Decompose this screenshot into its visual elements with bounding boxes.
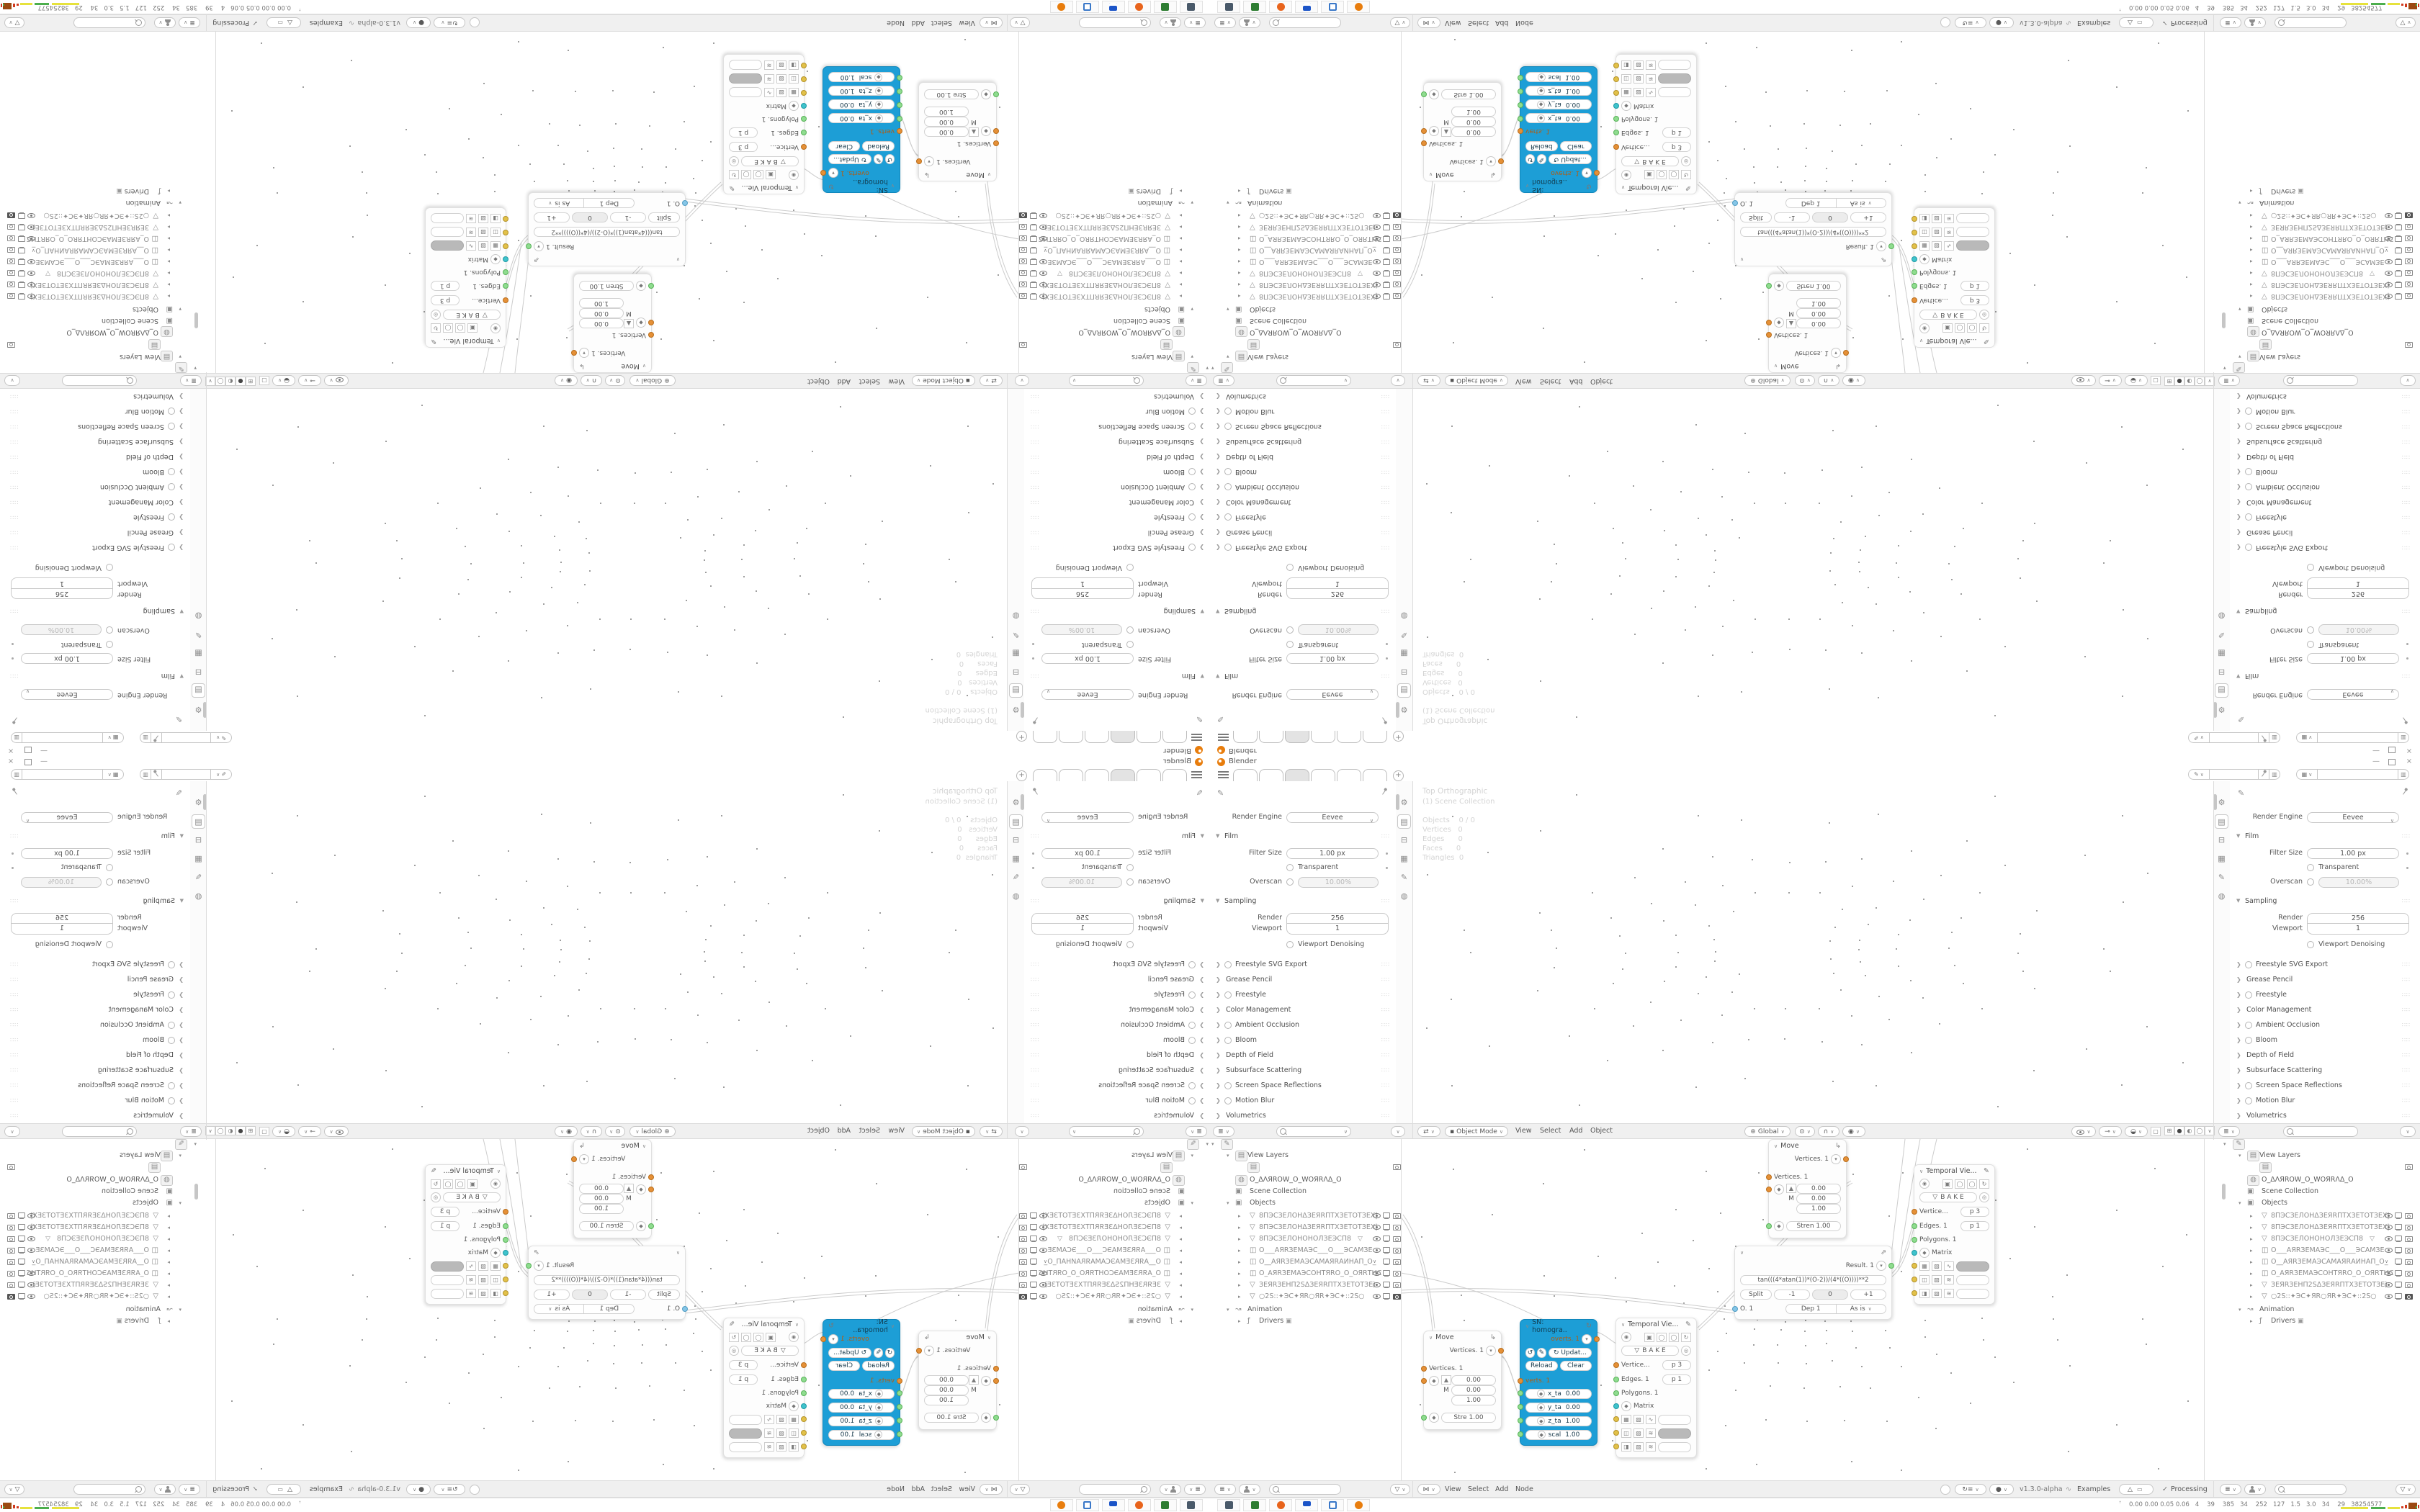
- checkbox[interactable]: [1126, 626, 1134, 634]
- circle-toggle[interactable]: ◯: [753, 1333, 763, 1342]
- offset-button-0[interactable]: 0: [572, 1290, 608, 1300]
- outliner-row[interactable]: ▸◫О_АЯRЗЕМАЭСОНТЯRО_О_ОЯRТНС: [0, 232, 198, 243]
- outliner-row[interactable]: ▸▽8ПЭСЗЕЛОНОНОЛЗЕЭСП8▽: [1210, 1234, 1408, 1246]
- outliner-row[interactable]: ▾✎: [1210, 361, 1408, 373]
- outliner-row[interactable]: ▾▣Objects: [0, 1198, 198, 1210]
- checkbox[interactable]: [1224, 1022, 1232, 1029]
- screen-toggle-icon[interactable]: [18, 224, 25, 230]
- prop-field[interactable]: 10.00%: [2318, 877, 2399, 888]
- menu-select[interactable]: Select: [1540, 1127, 1561, 1135]
- input-socket-orange[interactable]: [648, 1187, 654, 1192]
- input-socket-orange[interactable]: [1421, 128, 1427, 134]
- camera-toggle-icon[interactable]: [7, 271, 15, 276]
- outliner-row[interactable]: ▸▽ЗЕЯRЗЕНП2SΔЗЕЯRПТХЗЕТОТЗЕ): [1012, 1280, 1210, 1292]
- eye-toggle-icon[interactable]: [27, 1212, 35, 1218]
- properties-search-input[interactable]: ∨: [1069, 1126, 1144, 1137]
- disclosure-arrow-icon[interactable]: ▾: [1227, 306, 1229, 312]
- grid-icon[interactable]: ◨: [789, 1442, 799, 1452]
- screen-toggle-icon[interactable]: [1030, 1212, 1037, 1219]
- grid-icon[interactable]: ◨: [1919, 214, 1930, 223]
- outliner-filter-funnel[interactable]: ▽∨: [4, 17, 24, 28]
- input-socket-yellow[interactable]: [1613, 76, 1619, 82]
- disclosure-arrow-icon[interactable]: ▸: [1179, 1282, 1182, 1288]
- outliner-row[interactable]: ▸◫О_АЯRЗЕМАЭСОНТЯRО_О_ОЯRТНС: [2222, 1269, 2420, 1280]
- driver-icon[interactable]: ◆: [636, 281, 646, 291]
- curve-icon[interactable]: ≋: [1646, 74, 1656, 84]
- output-socket-orange[interactable]: [1594, 170, 1600, 176]
- edges-value[interactable]: p 1: [1662, 1374, 1691, 1385]
- disclosure-arrow-icon[interactable]: ▸: [1179, 188, 1182, 194]
- menu-view[interactable]: View: [1445, 19, 1461, 27]
- render-engine-select[interactable]: Eevee∨: [1286, 689, 1379, 700]
- circle-toggle[interactable]: ◯: [753, 171, 763, 180]
- checkbox[interactable]: [1224, 544, 1232, 551]
- collapse-chevron-icon[interactable]: ∨: [891, 1323, 895, 1329]
- orientation-select[interactable]: ⊕Global∨: [1744, 1126, 1791, 1137]
- screen-toggle-icon[interactable]: [1383, 258, 1390, 265]
- grid-icon[interactable]: ▦: [490, 1261, 501, 1271]
- outliner-row[interactable]: ▸▽8ПЭСЗЕЛОНΔЗЕЯRПТХЗЕТОТЗЕХ|: [1012, 278, 1210, 289]
- datablock-selector-image[interactable]: ▦∨▥: [11, 769, 124, 780]
- clear-button[interactable]: Clear: [1560, 1361, 1592, 1371]
- grid-icon[interactable]: ▦: [1621, 88, 1631, 97]
- archive-icon[interactable]: [1102, 1, 1125, 13]
- collapse-chevron-icon[interactable]: ∨: [1740, 1250, 1744, 1256]
- eye-toggle-icon[interactable]: [2385, 236, 2393, 242]
- chevron-icon[interactable]: ∨: [2385, 248, 2388, 253]
- screen-toggle-icon[interactable]: [2395, 1259, 2402, 1265]
- curve-icon[interactable]: ≋: [1944, 228, 1954, 237]
- recenter-button[interactable]: ↺: [885, 154, 895, 164]
- input-socket-yellow[interactable]: [503, 1263, 508, 1269]
- input-socket-green[interactable]: [503, 283, 508, 289]
- outliner-filter-funnel[interactable]: ▽∨: [1390, 17, 1410, 28]
- input-socket-green[interactable]: [1613, 1377, 1619, 1382]
- snap-node-dropdown[interactable]: ↻≡∨: [434, 17, 465, 28]
- outliner-row[interactable]: ▸▽ЗЕЯRЗЕНП2SΔЗЕЯRПТХЗЕТОТЗЕ): [1210, 220, 1408, 232]
- layer-field[interactable]: [431, 241, 464, 251]
- menu-add[interactable]: Add: [1495, 19, 1508, 27]
- split-button[interactable]: Split: [1740, 212, 1772, 222]
- disclosure-arrow-icon[interactable]: ▸: [167, 1259, 170, 1265]
- prop-field[interactable]: 1.00 px: [1041, 848, 1134, 859]
- input-socket-green[interactable]: [1421, 91, 1427, 97]
- outliner-row[interactable]: ▾↝Animation: [0, 1305, 198, 1316]
- prop-field[interactable]: 1: [1031, 924, 1134, 935]
- screen-toggle-icon[interactable]: [2395, 212, 2402, 219]
- disclosure-arrow-icon[interactable]: ▾: [194, 365, 197, 371]
- disclosure-arrow-icon[interactable]: ▸: [1179, 1294, 1182, 1300]
- input-socket-yellow[interactable]: [503, 1290, 508, 1296]
- up-arrow-button[interactable]: ▲: [1786, 1184, 1796, 1193]
- visibility-dropdown[interactable]: ∨: [324, 375, 349, 386]
- outliner-row[interactable]: ▾▣Objects: [1210, 1198, 1408, 1210]
- checkbox[interactable]: [2307, 878, 2314, 886]
- disclosure-arrow-icon[interactable]: ▸: [167, 1282, 170, 1288]
- node-temporal-vertex[interactable]: ∨Temporal Vie...✎◉▣◯◯↻▽B A K E◎Vertice..…: [723, 1318, 805, 1458]
- menu-add[interactable]: Add: [912, 1485, 925, 1493]
- layer-field[interactable]: [431, 1275, 464, 1285]
- outliner-row[interactable]: ▾▤View Layers: [2222, 1151, 2420, 1162]
- chevron-icon[interactable]: ∨: [1373, 1259, 1376, 1264]
- disclosure-arrow-icon[interactable]: ▸: [2250, 1294, 2253, 1300]
- package-icon[interactable]: [1243, 1499, 1266, 1511]
- mode-select[interactable]: ▪Object Mode∨: [1445, 375, 1508, 386]
- outliner-row[interactable]: ▸◫О_АЯRЗЕМАЭСОНТЯRО_О_ОЯRТНС: [0, 1269, 198, 1280]
- eye-toggle-icon[interactable]: [27, 1247, 35, 1253]
- prop-field[interactable]: 10.00%: [1298, 877, 1379, 888]
- checkbox[interactable]: [1126, 878, 1134, 886]
- prop-field[interactable]: 10.00%: [21, 624, 102, 635]
- checkbox[interactable]: [1224, 1037, 1232, 1044]
- outliner-row[interactable]: ▸ƒDrivers▣: [0, 184, 198, 196]
- disclosure-arrow-icon[interactable]: ▸: [2250, 1318, 2253, 1324]
- screen-toggle-icon[interactable]: [1383, 224, 1390, 230]
- pin-icon[interactable]: [1380, 716, 1389, 726]
- vector-z-field[interactable]: 1.00: [1796, 1204, 1841, 1214]
- menu-select[interactable]: Select: [931, 19, 952, 27]
- driver-icon[interactable]: ◆: [1774, 1184, 1784, 1194]
- overlay-dropdown[interactable]: ●∨: [1989, 1484, 2014, 1495]
- sn-field[interactable]: ◆scal1.00: [1525, 1430, 1592, 1440]
- disclosure-arrow-icon[interactable]: ▾: [179, 354, 181, 359]
- outliner-row[interactable]: ▾✎: [0, 361, 198, 373]
- maximize-button[interactable]: [2388, 747, 2396, 753]
- bake-button[interactable]: ▽B A K E: [741, 156, 799, 166]
- driver-icon[interactable]: ◆: [1774, 281, 1784, 291]
- workspace-tab[interactable]: [1311, 769, 1335, 781]
- collapse-chevron-icon[interactable]: ∨: [1429, 1335, 1433, 1341]
- disclosure-arrow-icon[interactable]: ▸: [167, 235, 170, 241]
- new-datablock-icon[interactable]: ▥: [2269, 732, 2280, 743]
- vector-x-field[interactable]: 0.00: [1796, 318, 1841, 328]
- disclosure-arrow-icon[interactable]: ▸: [2250, 270, 2253, 276]
- vector-x-field[interactable]: 0.00: [924, 127, 969, 137]
- xray-toggle[interactable]: ▢: [259, 376, 269, 385]
- curve-icon[interactable]: ≋: [1944, 214, 1954, 223]
- input-socket-green[interactable]: [897, 75, 902, 81]
- camera-toggle-icon[interactable]: [1019, 1224, 1027, 1230]
- eye-toggle-icon[interactable]: [1373, 1293, 1381, 1299]
- node-move[interactable]: ∨Move↳Vertices. 1▾Vertices. 1◆▲0.00M0.00…: [918, 82, 997, 181]
- strength-field[interactable]: Stre 1.00: [924, 1413, 979, 1423]
- world-icon[interactable]: ◍: [1397, 608, 1411, 623]
- checkbox[interactable]: [1126, 641, 1134, 648]
- outliner-row[interactable]: ▸▽8ПЭСЗЕЛОНОНОЛЗЕЭСП8▽: [2222, 1234, 2420, 1246]
- firefox-icon[interactable]: [1269, 1, 1292, 13]
- recenter-button[interactable]: ↺: [1525, 154, 1535, 164]
- refresh-toggle[interactable]: ↻: [431, 1179, 441, 1189]
- screen-toggle-icon[interactable]: [18, 282, 25, 288]
- wireframe-shading-button[interactable]: ⊞: [246, 1126, 256, 1135]
- properties-editor-select[interactable]: ≣∨: [1186, 375, 1207, 386]
- disclosure-arrow-icon[interactable]: ▸: [167, 293, 170, 299]
- camera-toggle-icon[interactable]: [2405, 248, 2413, 253]
- pivot-select[interactable]: ⊙∨: [1795, 375, 1815, 386]
- output-value-toggle[interactable]: ▾: [828, 168, 838, 178]
- disclosure-arrow-icon[interactable]: ▸: [1179, 1213, 1182, 1219]
- outliner-filter-funnel[interactable]: ▽∨: [1390, 1484, 1410, 1495]
- outliner-search-input[interactable]: [2275, 17, 2347, 28]
- disclosure-arrow-icon[interactable]: ▸: [1238, 282, 1241, 287]
- eye-toggle-icon[interactable]: [2385, 1282, 2393, 1287]
- input-socket-green[interactable]: [1518, 116, 1523, 122]
- outliner-row[interactable]: ▸◫О___АЯRЗЕМАЭС___О___ЭСАМЗЕ: [1210, 255, 1408, 266]
- camera-toggle-icon[interactable]: [7, 1247, 15, 1253]
- curve-icon[interactable]: ∿: [1944, 1261, 1954, 1271]
- edges-value[interactable]: p 1: [1960, 281, 1989, 291]
- circle-toggle[interactable]: ◯: [1955, 1179, 1965, 1189]
- screen-toggle-icon[interactable]: [1383, 212, 1390, 219]
- palette-icon[interactable]: ▧: [478, 1275, 488, 1284]
- datablock-name-field[interactable]: [22, 732, 102, 743]
- outliner-row[interactable]: ▸▽8ПЭСЗЕЛОНОНОЛЗЕЭСП8▽: [2222, 266, 2420, 278]
- screen-toggle-icon[interactable]: [1383, 247, 1390, 253]
- vector-x-field[interactable]: 0.00: [1451, 127, 1496, 137]
- input-socket-green[interactable]: [801, 1377, 807, 1382]
- outliner-row[interactable]: ▸ƒDrivers▣: [1210, 184, 1408, 196]
- input-socket-yellow[interactable]: [801, 76, 807, 82]
- outliner-row[interactable]: ▸▽8ПЭСЗЕЛОНΔЗЕЯRПТХЗЕТОТЗЕХ|: [1012, 1211, 1210, 1223]
- node-formula[interactable]: ∨⇗Result. 1▾tan(((4*atan(1))*(O-2))/(4*(…: [1734, 192, 1892, 266]
- prop-field[interactable]: 10.00%: [1298, 624, 1379, 635]
- render-icon[interactable]: ▤: [2215, 683, 2228, 698]
- screen-toggle-icon[interactable]: [1030, 1282, 1037, 1288]
- outliner-row[interactable]: ▾✎: [2222, 1139, 2420, 1151]
- node-editor[interactable]: ∨Move↳Vertices. 1▾Vertices. 1◆▲0.00M0.00…: [216, 1139, 1019, 1480]
- node-header[interactable]: ∨Move↳: [919, 1331, 996, 1344]
- options-chevron[interactable]: ∨: [2400, 1126, 2416, 1137]
- workspace-tab[interactable]: [1085, 731, 1109, 743]
- driver-icon[interactable]: ◆: [1621, 1401, 1631, 1411]
- properties-search-input[interactable]: [62, 1126, 137, 1137]
- properties-editor-select[interactable]: ≣∨: [1186, 1126, 1207, 1137]
- output-icon[interactable]: ⊟: [1397, 665, 1411, 679]
- camera-toggle-icon[interactable]: [7, 1164, 15, 1169]
- vector-y-field[interactable]: 0.00: [1796, 308, 1841, 318]
- camera-toggle-icon[interactable]: [7, 213, 15, 219]
- camera-toggle-icon[interactable]: [1393, 248, 1401, 253]
- eye-toggle-icon[interactable]: [2385, 1212, 2393, 1218]
- vector-z-field[interactable]: 1.00: [579, 298, 624, 308]
- material-shading-button[interactable]: ◐: [2184, 1126, 2195, 1135]
- eye-toggle-icon[interactable]: [1373, 271, 1381, 276]
- solid-shading-button[interactable]: ●: [236, 1126, 246, 1135]
- depth-field[interactable]: Dep 1: [584, 1304, 635, 1314]
- vector-y-field[interactable]: 0.00: [1451, 1385, 1496, 1395]
- maximize-button[interactable]: [24, 747, 32, 753]
- offset-button--1[interactable]: -1: [610, 212, 646, 222]
- input-socket-orange[interactable]: [1912, 1209, 1917, 1215]
- formula-field[interactable]: tan(((4*atan(1))*(O-2))/(4*((O))))**2: [1740, 1275, 1886, 1285]
- outliner-row[interactable]: ▾▤View Layers: [2222, 350, 2420, 361]
- eye-toggle-icon[interactable]: [1373, 1282, 1381, 1287]
- bake-button[interactable]: ▽B A K E: [1919, 1192, 1977, 1202]
- driver-icon[interactable]: ◆: [636, 1184, 646, 1194]
- camera-toggle-icon[interactable]: [1393, 282, 1401, 288]
- brush-icon[interactable]: ✎: [2215, 870, 2228, 885]
- prop-field[interactable]: 10.00%: [1041, 624, 1122, 635]
- sn-field[interactable]: ◆z_ta1.00: [1525, 1416, 1592, 1426]
- output-socket-orange[interactable]: [1594, 1336, 1600, 1342]
- driver-icon[interactable]: ◆: [981, 1413, 991, 1423]
- prop-field[interactable]: 10.00%: [21, 877, 102, 888]
- outliner-row[interactable]: ◍O_ΔΛЯROW_O_WOЯRΛΔ_O: [0, 1175, 198, 1187]
- curve-icon[interactable]: ∿: [764, 1415, 774, 1424]
- input-socket-green[interactable]: [503, 1237, 508, 1243]
- sn-field[interactable]: ◆scal1.00: [1525, 73, 1592, 83]
- input-socket-orange[interactable]: [993, 1378, 999, 1384]
- sn-field[interactable]: ◆z_ta1.00: [828, 86, 895, 96]
- clear-button[interactable]: Clear: [828, 141, 860, 151]
- disclosure-arrow-icon[interactable]: ▾: [1206, 1141, 1209, 1147]
- disclosure-arrow-icon[interactable]: ▸: [2250, 1236, 2253, 1242]
- up-arrow-button[interactable]: ▲: [624, 319, 634, 328]
- reload-button[interactable]: Reload: [862, 1361, 895, 1371]
- camera-toggle-icon[interactable]: [1393, 259, 1401, 265]
- wireframe-shading-button[interactable]: ⊞: [2164, 377, 2174, 386]
- disclosure-arrow-icon[interactable]: ▾: [2238, 1153, 2241, 1158]
- offset-button-+1[interactable]: +1: [1850, 1290, 1886, 1300]
- input-socket-green[interactable]: [801, 1390, 807, 1396]
- clear-button[interactable]: Clear: [1560, 141, 1592, 151]
- menu-add[interactable]: Add: [912, 19, 925, 27]
- disclosure-arrow-icon[interactable]: ▸: [1179, 212, 1182, 218]
- prop-field[interactable]: 1.00 px: [21, 848, 113, 859]
- collapse-chevron-icon[interactable]: ∨: [987, 172, 991, 178]
- circle2-toggle[interactable]: ◯: [443, 1179, 453, 1189]
- brush-icon[interactable]: ✎: [1009, 627, 1023, 642]
- options-chevron[interactable]: ∨: [2400, 375, 2416, 386]
- input-socket-green[interactable]: [897, 1404, 902, 1410]
- checkbox[interactable]: [1224, 1082, 1232, 1089]
- pin-icon[interactable]: [151, 732, 161, 743]
- input-socket-teal[interactable]: [503, 1250, 508, 1256]
- output-socket-orange[interactable]: [916, 1348, 922, 1354]
- circle-toggle[interactable]: ◯: [1657, 1333, 1667, 1342]
- node-sn-homograph[interactable]: ∨SN: homogra..↻overts. 1▾↺✎↻ Updat...Rel…: [823, 1319, 900, 1446]
- checkbox[interactable]: [1286, 864, 1294, 871]
- outliner-row[interactable]: ▸▽○2S::✦ЭС✦ЯR○ЯR✦ЭС✦::2S○: [1012, 1292, 1210, 1303]
- output-value-toggle[interactable]: ▾: [828, 1334, 838, 1344]
- prop-field[interactable]: 256: [1286, 588, 1389, 599]
- screen-toggle-icon[interactable]: [1030, 235, 1037, 242]
- outliner-filter-person[interactable]: ∨: [2244, 17, 2266, 28]
- sn-field[interactable]: ◆y_ta0.00: [1525, 100, 1592, 110]
- editor-type-select[interactable]: ⇄∨: [1417, 375, 1440, 386]
- camera-toggle-icon[interactable]: [1393, 236, 1401, 242]
- solid-shading-button[interactable]: ●: [236, 377, 246, 386]
- solid-shading-button[interactable]: ●: [2174, 1126, 2184, 1135]
- disclosure-arrow-icon[interactable]: ▾: [1227, 199, 1229, 205]
- disclosure-arrow-icon[interactable]: ▸: [1179, 235, 1182, 241]
- collapse-chevron-icon[interactable]: ∨: [1525, 1323, 1529, 1329]
- eye-toggle-icon[interactable]: [2385, 259, 2393, 265]
- checkbox[interactable]: [168, 423, 175, 430]
- eye-toggle-icon[interactable]: [1039, 1236, 1047, 1241]
- disclosure-arrow-icon[interactable]: ▸: [1238, 212, 1241, 218]
- outliner-row[interactable]: ▣Scene Collection: [1012, 314, 1210, 325]
- input-socket-green[interactable]: [1766, 1223, 1772, 1229]
- input-socket-yellow[interactable]: [1613, 1444, 1619, 1449]
- disclosure-arrow-icon[interactable]: ▾: [179, 1200, 181, 1206]
- proportional-edit-toggle[interactable]: ◉∨: [1842, 1126, 1865, 1137]
- outliner-row[interactable]: ▣Scene Collection: [2222, 1187, 2420, 1198]
- curve-icon[interactable]: ≋: [1944, 1275, 1954, 1284]
- outliner-row[interactable]: ▸▽○2S::✦ЭС✦ЯR○ЯR✦ЭС✦::2S○: [1210, 1292, 1408, 1303]
- cube-toggle[interactable]: ▣: [467, 324, 478, 333]
- screen-toggle-icon[interactable]: [1030, 1247, 1037, 1254]
- outliner-row[interactable]: ▸◫О___АЯRЗЕМАЭС___О___ЭСАМЗЕ: [2222, 255, 2420, 266]
- strength-field[interactable]: Stren 1.00: [1786, 281, 1841, 291]
- disclosure-arrow-icon[interactable]: ▸: [1238, 247, 1241, 253]
- menu-node[interactable]: Node: [887, 19, 905, 27]
- output-socket-orange[interactable]: [526, 1263, 532, 1269]
- input-socket-blue[interactable]: [682, 200, 688, 206]
- node-move[interactable]: ∨Move↳Vertices. 1▾Vertices. 1◆▲0.00M0.00…: [1423, 1331, 1502, 1430]
- outliner-row[interactable]: ▸▽8ПЭСЗЕЛОНΔЗЕЯRПТХЗЕТОТЗЕХ|: [0, 278, 198, 289]
- outliner-row[interactable]: ▸▽8ПЭСЗЕЛОНΔЗЕЯRПТХЗЕТОТЗЕХ|: [1210, 289, 1408, 301]
- driver-icon[interactable]: ◆: [490, 1248, 501, 1258]
- outliner-row[interactable]: ▸◫О__АЯRЗЕМАЭСАМАЯRАИНАП_О_∨: [1210, 1257, 1408, 1269]
- node-temporal-vertex[interactable]: ∨Temporal Vie...✎◉▣◯◯↻▽B A K E◎Vertice..…: [425, 1164, 506, 1305]
- output-value-toggle[interactable]: ▾: [1831, 348, 1841, 358]
- checkbox[interactable]: [1126, 941, 1134, 948]
- collapse-chevron-icon[interactable]: ∨: [1621, 1322, 1625, 1328]
- palette-icon[interactable]: ▧: [478, 228, 488, 237]
- disclosure-arrow-icon[interactable]: ▸: [167, 1236, 170, 1242]
- output-value-toggle[interactable]: ▾: [534, 241, 544, 251]
- datablock-name-field[interactable]: [2210, 732, 2259, 743]
- output-value-toggle[interactable]: ▾: [534, 1261, 544, 1271]
- checkbox[interactable]: [168, 483, 175, 490]
- node-move[interactable]: ∨Move↳Vertices. 1▾Vertices. 1◆▲0.00M0.00…: [1768, 274, 1847, 373]
- strength-field[interactable]: Stren 1.00: [579, 1221, 634, 1231]
- ghost-toggle[interactable]: ◎: [1979, 1192, 1989, 1202]
- output-value-toggle[interactable]: ▾: [1876, 1261, 1886, 1271]
- menu-select[interactable]: Select: [1540, 377, 1561, 385]
- menu-add[interactable]: Add: [1495, 1485, 1508, 1493]
- output-socket-orange[interactable]: [1498, 1348, 1504, 1354]
- screen-toggle-icon[interactable]: [2395, 1247, 2402, 1254]
- as-is-select[interactable]: As is∨: [534, 198, 584, 208]
- camera-toggle-icon[interactable]: [7, 1282, 15, 1287]
- options-chevron[interactable]: ∨: [4, 375, 20, 386]
- outliner-row[interactable]: ▸◫О__АЯRЗЕМАЭСАМАЯRАИНАП_О_∨: [2222, 243, 2420, 255]
- pin-icon[interactable]: [151, 769, 161, 780]
- bake-button[interactable]: ▽B A K E: [741, 1346, 799, 1356]
- sn-field[interactable]: ◆y_ta0.00: [1525, 1403, 1592, 1413]
- mode-select[interactable]: ▪Object Mode∨: [912, 1126, 975, 1137]
- workspace-tab[interactable]: [1337, 769, 1361, 781]
- input-socket-orange[interactable]: [1912, 297, 1917, 303]
- checkbox[interactable]: [2245, 483, 2252, 490]
- editor-type-select[interactable]: ⇄∨: [980, 375, 1003, 386]
- checkbox[interactable]: [168, 513, 175, 521]
- disclosure-arrow-icon[interactable]: ▾: [2238, 199, 2241, 205]
- screen-toggle-icon[interactable]: [1030, 293, 1037, 300]
- camera-toggle-icon[interactable]: [7, 1293, 15, 1299]
- outliner-row[interactable]: ▾▤View Layers: [1210, 350, 1408, 361]
- driver-icon[interactable]: ◆: [636, 1221, 646, 1231]
- node-temporal-vertex[interactable]: ∨Temporal Vie...✎◉▣◯◯↻▽B A K E◎Vertice..…: [1914, 1164, 1995, 1305]
- palette-icon[interactable]: ▧: [776, 1428, 786, 1438]
- up-arrow-button[interactable]: ▲: [969, 1375, 979, 1385]
- input-socket-green[interactable]: [1518, 75, 1523, 81]
- checkbox[interactable]: [2307, 626, 2314, 634]
- vector-z-field[interactable]: 1.00: [579, 1204, 624, 1214]
- outliner-row[interactable]: ▸▽8ПЭСЗЕЛОНΔЗЕЯRПТХЗЕТОТЗЕХ|: [0, 289, 198, 301]
